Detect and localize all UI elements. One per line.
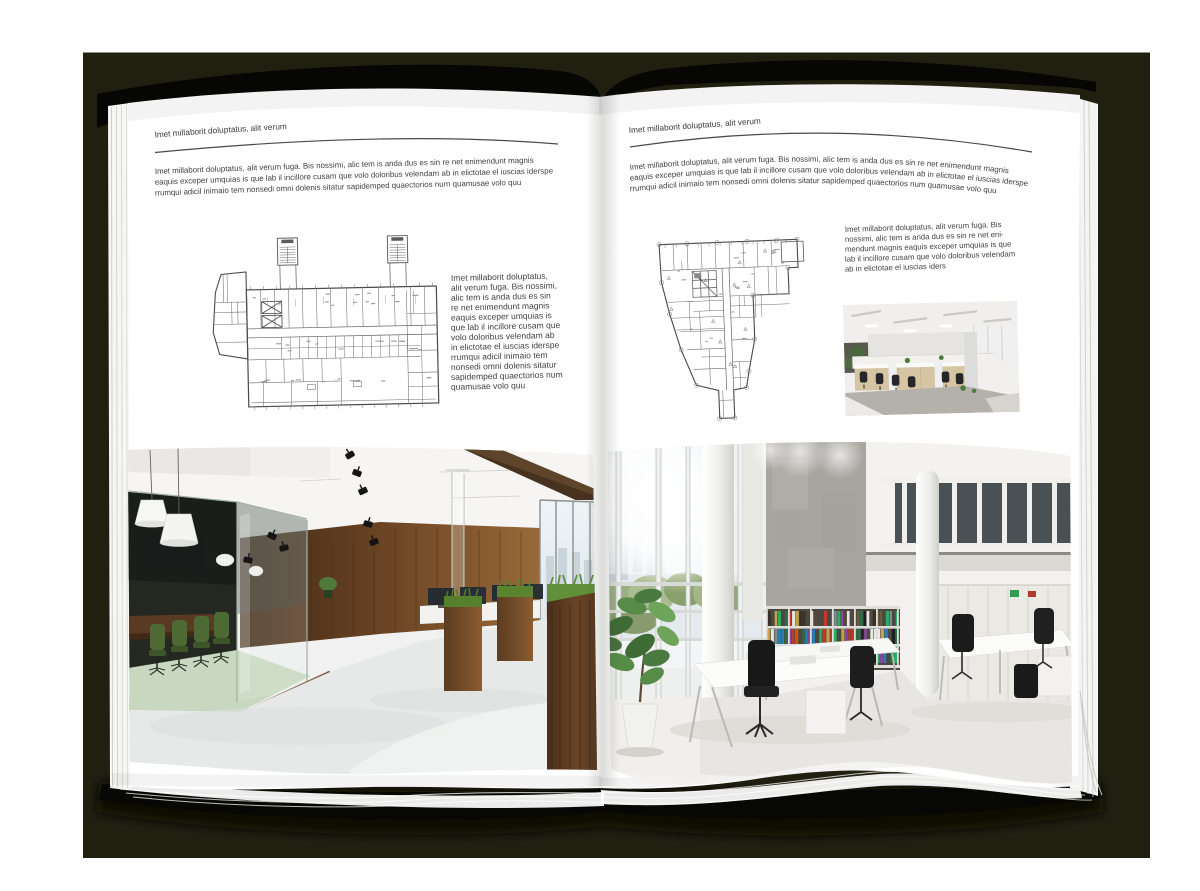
svg-text:quamusae volo quu: quamusae volo quu <box>451 380 526 392</box>
